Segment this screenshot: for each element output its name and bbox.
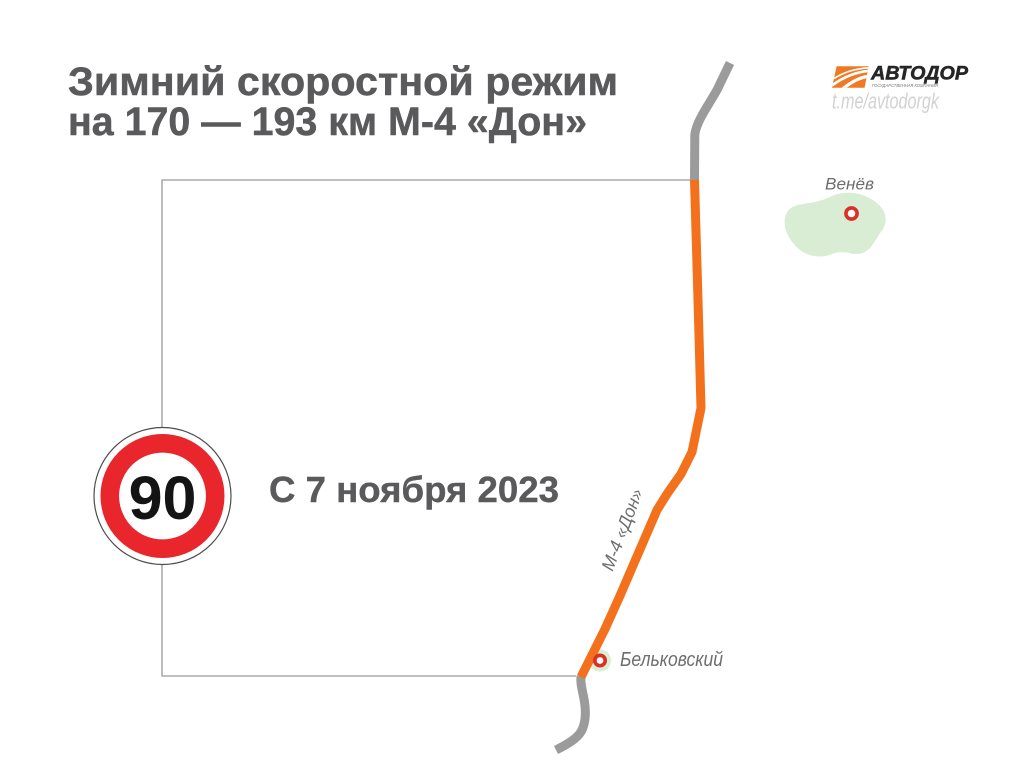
svg-text:t.me/avtodorgk: t.me/avtodorgk	[832, 89, 940, 114]
svg-text:Венёв: Венёв	[825, 175, 874, 194]
svg-text:Бельковский: Бельковский	[620, 649, 723, 671]
svg-text:АВТОДОР: АВТОДОР	[870, 63, 969, 85]
svg-text:Зимний скоростной режим: Зимний скоростной режим	[68, 60, 618, 104]
svg-text:ГОСУДАРСТВЕННАЯ КОМПАНИЯ: ГОСУДАРСТВЕННАЯ КОМПАНИЯ	[872, 83, 938, 88]
svg-text:С 7 ноября 2023: С 7 ноября 2023	[269, 469, 559, 510]
svg-text:на 170 — 193 км М-4 «Дон»: на 170 — 193 км М-4 «Дон»	[68, 100, 587, 144]
svg-text:90: 90	[129, 464, 197, 532]
